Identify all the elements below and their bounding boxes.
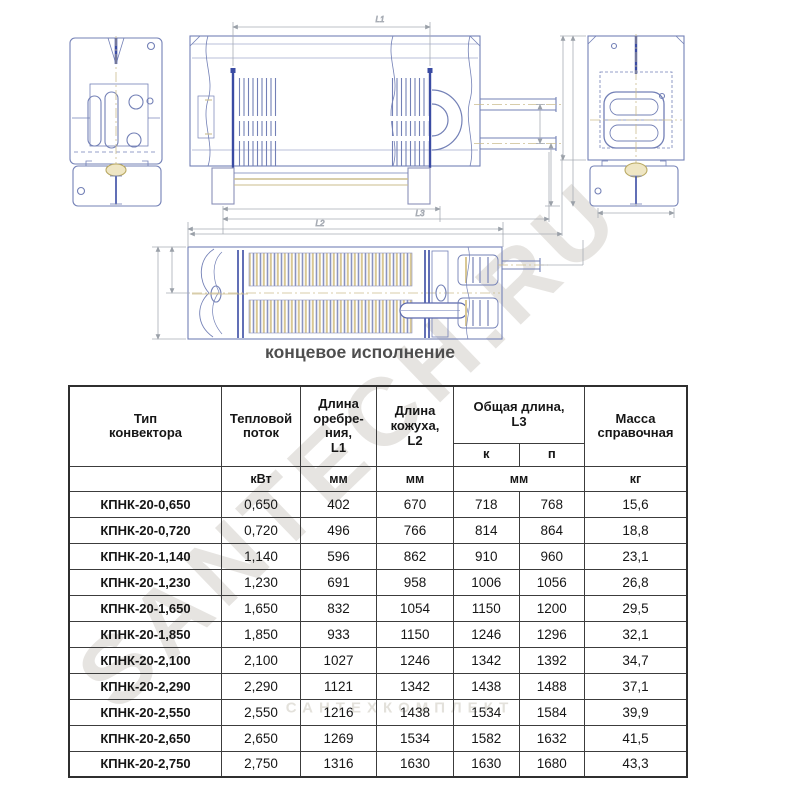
value-cell: 1,230 [222, 569, 301, 595]
value-cell: 1200 [519, 595, 585, 621]
unit-heat: кВт [222, 466, 301, 491]
convector-type-cell: КПНК-20-2,290 [69, 673, 222, 699]
value-cell: 1488 [519, 673, 585, 699]
value-cell: 41,5 [585, 725, 688, 751]
value-cell: 43,3 [585, 751, 688, 777]
value-cell: 37,1 [585, 673, 688, 699]
table-row: КПНК-20-2,5502,550121614381534158439,9 [69, 699, 687, 725]
value-cell: 402 [301, 491, 377, 517]
technical-drawings: L1 L3 L2 [0, 0, 800, 375]
value-cell: 766 [377, 517, 454, 543]
table-row: КПНК-20-1,1401,14059686291096023,1 [69, 543, 687, 569]
table-row: КПНК-20-0,6500,65040267071876815,6 [69, 491, 687, 517]
value-cell: 18,8 [585, 517, 688, 543]
dim-label-l1: L1 [376, 15, 385, 24]
value-cell: 1,140 [222, 543, 301, 569]
value-cell: 2,750 [222, 751, 301, 777]
value-cell: 958 [377, 569, 454, 595]
top-right-bracket [425, 250, 448, 338]
value-cell: 1054 [377, 595, 454, 621]
convector-type-cell: КПНК-20-1,850 [69, 621, 222, 647]
fin-block-right [390, 78, 428, 166]
value-cell: 1630 [377, 751, 454, 777]
datasheet-page: SANTECH.RU САНТЕХКОМПЛЕКТ [0, 0, 800, 800]
value-cell: 862 [377, 543, 454, 569]
value-cell: 1246 [377, 647, 454, 673]
convector-type-cell: КПНК-20-1,650 [69, 595, 222, 621]
col-header-fin-length: Длина оребре- ния, L1 [301, 386, 377, 466]
pipe-stubs [474, 97, 562, 151]
end-view [588, 34, 684, 206]
dim-label-l3: L3 [416, 209, 425, 218]
col-subheader-p: п [519, 443, 585, 466]
value-cell: 2,290 [222, 673, 301, 699]
col-header-casing-length: Длина кожуха, L2 [377, 386, 454, 466]
convector-type-cell: КПНК-20-0,720 [69, 517, 222, 543]
value-cell: 1,650 [222, 595, 301, 621]
value-cell: 39,9 [585, 699, 688, 725]
fin-band-upper [249, 253, 412, 286]
table-row: КПНК-20-2,6502,650126915341582163241,5 [69, 725, 687, 751]
convector-type-cell: КПНК-20-2,100 [69, 647, 222, 673]
value-cell: 1296 [519, 621, 585, 647]
value-cell: 34,7 [585, 647, 688, 673]
convector-type-cell: КПНК-20-2,550 [69, 699, 222, 725]
table-row: КПНК-20-2,1002,100102712461342139234,7 [69, 647, 687, 673]
value-cell: 1438 [377, 699, 454, 725]
convector-type-cell: КПНК-20-1,140 [69, 543, 222, 569]
value-cell: 691 [301, 569, 377, 595]
mounting-feet [212, 168, 430, 204]
spec-table-head: Тип конвектора Тепловой поток Длина ореб… [69, 386, 687, 491]
value-cell: 1632 [519, 725, 585, 751]
dim-label-l2: L2 [316, 219, 325, 228]
value-cell: 32,1 [585, 621, 688, 647]
unit-empty [69, 466, 222, 491]
value-cell: 15,6 [585, 491, 688, 517]
col-header-mass: Масса справочная [585, 386, 688, 466]
end-foot [590, 161, 678, 206]
value-cell: 768 [519, 491, 585, 517]
bracket-foot [73, 161, 161, 206]
break-line [206, 36, 210, 166]
value-cell: 596 [301, 543, 377, 569]
table-row: КПНК-20-1,8501,85093311501246129632,1 [69, 621, 687, 647]
convector-type-cell: КПНК-20-0,650 [69, 491, 222, 517]
fin-block-left [237, 78, 277, 166]
dimension-lines: L1 L3 L2 [152, 15, 674, 339]
value-cell: 1534 [377, 725, 454, 751]
convector-type-cell: КПНК-20-1,230 [69, 569, 222, 595]
value-cell: 718 [454, 491, 520, 517]
unit-casing: мм [377, 466, 454, 491]
value-cell: 1680 [519, 751, 585, 777]
convector-type-cell: КПНК-20-2,750 [69, 751, 222, 777]
value-cell: 29,5 [585, 595, 688, 621]
value-cell: 0,720 [222, 517, 301, 543]
inner-plate [90, 84, 148, 146]
value-cell: 910 [454, 543, 520, 569]
top-view [188, 247, 548, 339]
value-cell: 1056 [519, 569, 585, 595]
spec-table: Тип конвектора Тепловой поток Длина ореб… [68, 385, 688, 778]
screw-hole [148, 43, 155, 50]
value-cell: 1246 [454, 621, 520, 647]
value-cell: 0,650 [222, 491, 301, 517]
u-bend [432, 90, 462, 150]
value-cell: 1534 [454, 699, 520, 725]
value-cell: 933 [301, 621, 377, 647]
value-cell: 1392 [519, 647, 585, 673]
value-cell: 496 [301, 517, 377, 543]
value-cell: 2,650 [222, 725, 301, 751]
value-cell: 864 [519, 517, 585, 543]
value-cell: 1150 [454, 595, 520, 621]
value-cell: 832 [301, 595, 377, 621]
table-row: КПНК-20-0,7200,72049676681486418,8 [69, 517, 687, 543]
value-cell: 1269 [301, 725, 377, 751]
value-cell: 1438 [454, 673, 520, 699]
col-header-total-length: Общая длина, L3 [454, 386, 585, 443]
table-body: КПНК-20-0,6500,65040267071876815,6КПНК-2… [69, 491, 687, 777]
value-cell: 1216 [301, 699, 377, 725]
break-line [468, 36, 471, 166]
value-cell: 1630 [454, 751, 520, 777]
unit-mass: кг [585, 466, 688, 491]
col-header-type: Тип конвектора [69, 386, 222, 466]
value-cell: 1,850 [222, 621, 301, 647]
table-row: КПНК-20-1,6501,65083210541150120029,5 [69, 595, 687, 621]
unit-fin: мм [301, 466, 377, 491]
table-row: КПНК-20-1,2301,2306919581006105626,8 [69, 569, 687, 595]
value-cell: 960 [519, 543, 585, 569]
unit-total: мм [454, 466, 585, 491]
value-cell: 1342 [377, 673, 454, 699]
col-header-heat: Тепловой поток [222, 386, 301, 466]
value-cell: 1584 [519, 699, 585, 725]
value-cell: 1342 [454, 647, 520, 673]
value-cell: 2,550 [222, 699, 301, 725]
table-row: КПНК-20-2,2902,290112113421438148837,1 [69, 673, 687, 699]
value-cell: 1006 [454, 569, 520, 595]
value-cell: 814 [454, 517, 520, 543]
value-cell: 1027 [301, 647, 377, 673]
top-left-cap [192, 249, 248, 338]
fin-band-lower [249, 300, 412, 333]
value-cell: 670 [377, 491, 454, 517]
front-view [190, 36, 562, 204]
col-subheader-k: к [454, 443, 520, 466]
bracket-side-view [70, 36, 162, 206]
value-cell: 26,8 [585, 569, 688, 595]
value-cell: 1121 [301, 673, 377, 699]
convector-type-cell: КПНК-20-2,650 [69, 725, 222, 751]
drawing-caption: концевое исполнение [200, 342, 520, 363]
value-cell: 1316 [301, 751, 377, 777]
value-cell: 1150 [377, 621, 454, 647]
hole-lower [127, 133, 141, 147]
table-row: КПНК-20-2,7502,750131616301630168043,3 [69, 751, 687, 777]
value-cell: 2,100 [222, 647, 301, 673]
value-cell: 23,1 [585, 543, 688, 569]
units-row: кВт мм мм мм кг [69, 466, 687, 491]
hole-upper [129, 95, 143, 109]
value-cell: 1582 [454, 725, 520, 751]
